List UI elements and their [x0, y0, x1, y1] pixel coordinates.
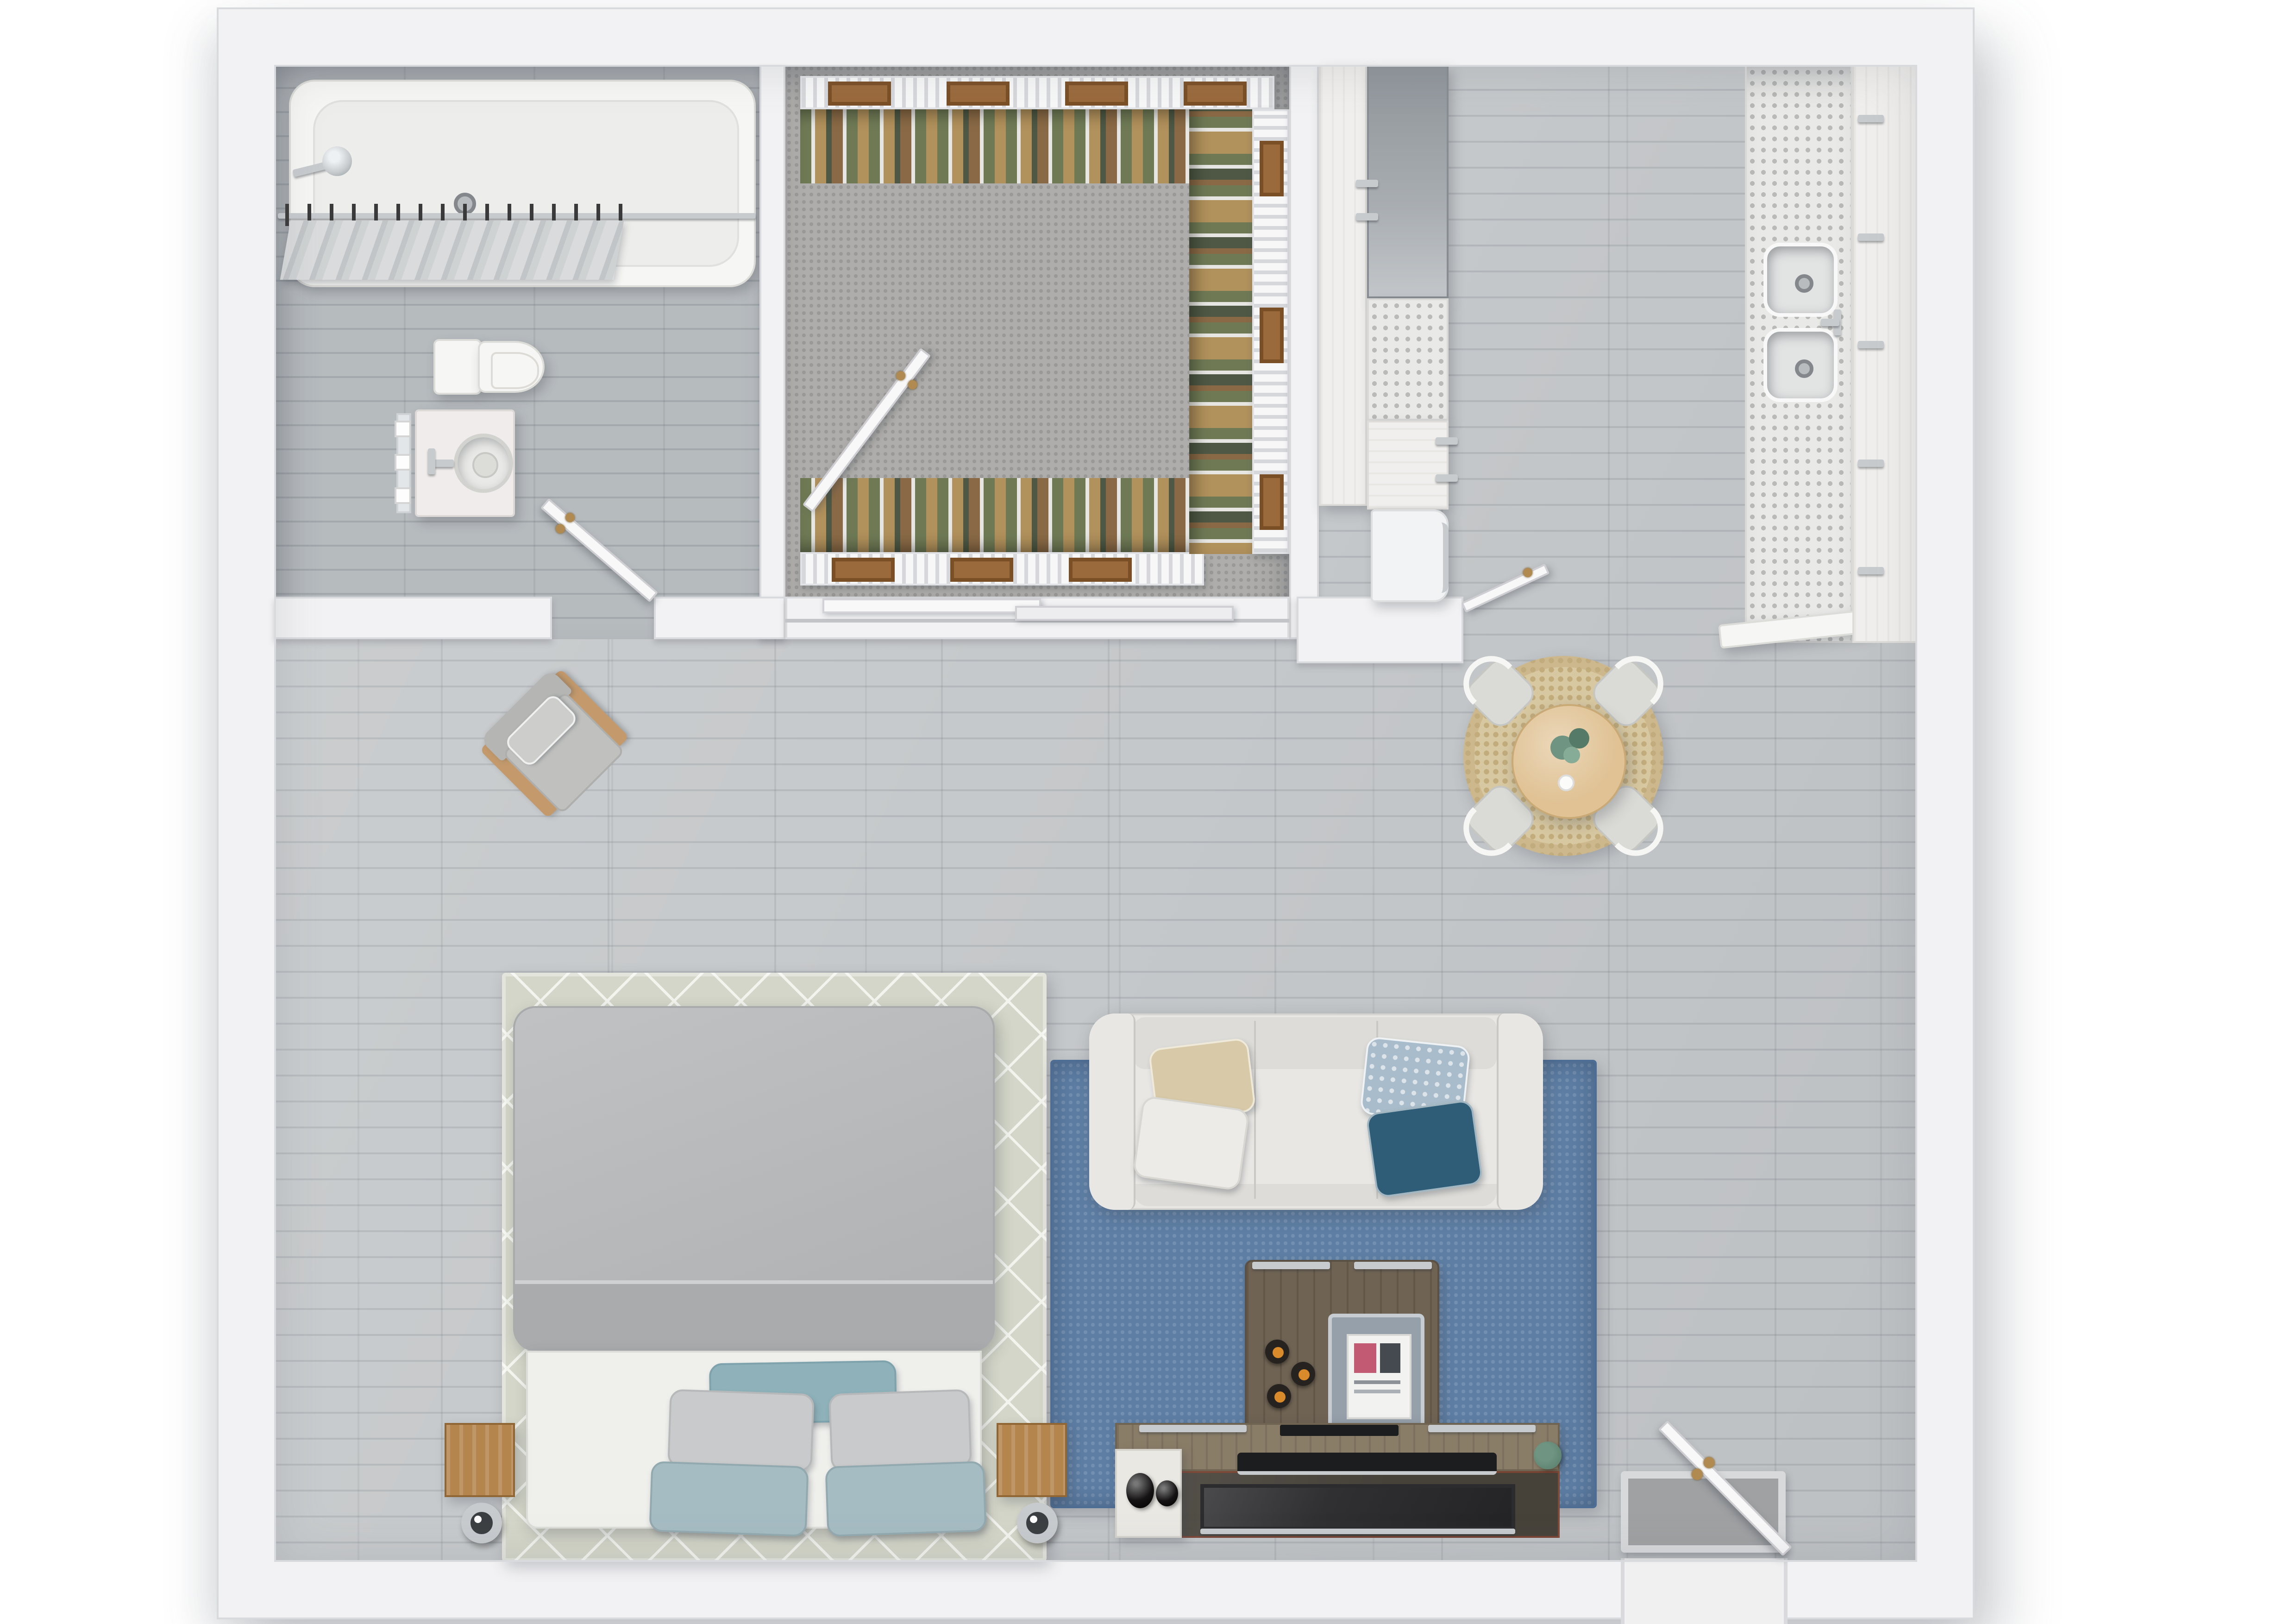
apartment-unit	[219, 9, 1973, 1618]
interior-edge	[274, 65, 1917, 1562]
entry-door-opening	[1621, 1558, 1788, 1624]
floor-plan-canvas	[0, 0, 2296, 1624]
